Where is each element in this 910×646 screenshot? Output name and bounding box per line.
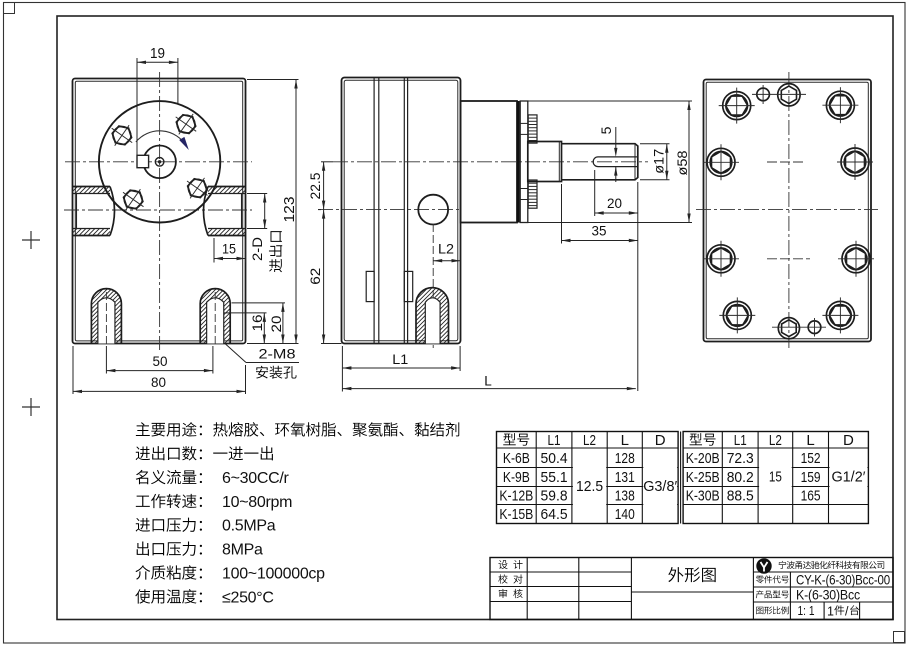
svg-text:15: 15 — [222, 241, 236, 257]
svg-text:15: 15 — [769, 469, 782, 486]
svg-text:159: 159 — [801, 469, 821, 486]
svg-text:L1: L1 — [392, 352, 408, 367]
svg-text:L: L — [484, 374, 492, 389]
svg-text:131: 131 — [615, 469, 635, 486]
svg-text:K-25B: K-25B — [686, 469, 720, 486]
svg-text:≤250°C: ≤250°C — [222, 589, 274, 606]
svg-text:55.1: 55.1 — [541, 469, 568, 486]
svg-text:G1/2′: G1/2′ — [831, 469, 865, 486]
svg-text:K-(6-30)Bcc: K-(6-30)Bcc — [796, 586, 860, 602]
svg-text:K-20B: K-20B — [686, 450, 720, 467]
svg-text:12.5: 12.5 — [576, 478, 603, 495]
svg-text:16: 16 — [249, 314, 265, 331]
svg-text:62: 62 — [307, 267, 323, 284]
svg-text:L2: L2 — [769, 432, 782, 449]
svg-text:D: D — [655, 432, 666, 449]
svg-text:/: / — [845, 604, 849, 618]
svg-text:2-M8: 2-M8 — [259, 347, 296, 362]
svg-text:L2: L2 — [583, 432, 596, 449]
svg-text:5: 5 — [598, 126, 614, 134]
svg-text:64.5: 64.5 — [541, 506, 568, 523]
svg-text:L1: L1 — [548, 432, 561, 449]
svg-text:K-12B: K-12B — [499, 488, 533, 505]
svg-text:CY-K-(6-30)Bcc-00: CY-K-(6-30)Bcc-00 — [796, 571, 890, 587]
svg-text:G3/8′: G3/8′ — [643, 478, 677, 495]
svg-text:50.4: 50.4 — [541, 450, 568, 467]
svg-text:0.5MPa: 0.5MPa — [222, 518, 276, 535]
svg-text:22.5: 22.5 — [307, 172, 323, 199]
svg-text:88.5: 88.5 — [727, 488, 754, 505]
svg-text:6~30CC/r: 6~30CC/r — [222, 470, 289, 487]
svg-text:8MPa: 8MPa — [222, 542, 263, 559]
svg-text:80: 80 — [151, 374, 166, 390]
svg-text:59.8: 59.8 — [541, 488, 568, 505]
svg-text:L2: L2 — [438, 242, 454, 257]
svg-text:1: 1 — [827, 604, 834, 618]
svg-text:ø58: ø58 — [674, 150, 690, 175]
svg-text:152: 152 — [801, 450, 821, 467]
svg-text:128: 128 — [615, 450, 635, 467]
svg-text:L: L — [621, 432, 629, 449]
svg-text:72.3: 72.3 — [727, 450, 754, 467]
svg-text:K-30B: K-30B — [686, 488, 720, 505]
svg-text:ø17: ø17 — [651, 149, 667, 174]
svg-text:165: 165 — [801, 488, 821, 505]
svg-text:140: 140 — [615, 506, 635, 523]
svg-text:L: L — [806, 432, 814, 449]
svg-text:K-6B: K-6B — [503, 450, 530, 467]
svg-text:20: 20 — [268, 315, 284, 332]
svg-text:K-15B: K-15B — [499, 506, 533, 523]
svg-text:138: 138 — [615, 488, 635, 505]
svg-text:10~80rpm: 10~80rpm — [222, 494, 292, 511]
svg-text:D: D — [843, 432, 854, 449]
svg-text:50: 50 — [153, 353, 168, 369]
svg-text:2-D: 2-D — [249, 237, 265, 261]
svg-text:K-9B: K-9B — [503, 469, 530, 486]
svg-text:19: 19 — [150, 45, 165, 62]
svg-text:L1: L1 — [734, 432, 747, 449]
svg-text:1: 1: 1: 1 — [798, 604, 815, 618]
svg-text:20: 20 — [607, 196, 622, 211]
svg-text:100~100000cp: 100~100000cp — [222, 565, 325, 582]
svg-text:35: 35 — [592, 224, 607, 239]
svg-text:80.2: 80.2 — [727, 469, 754, 486]
